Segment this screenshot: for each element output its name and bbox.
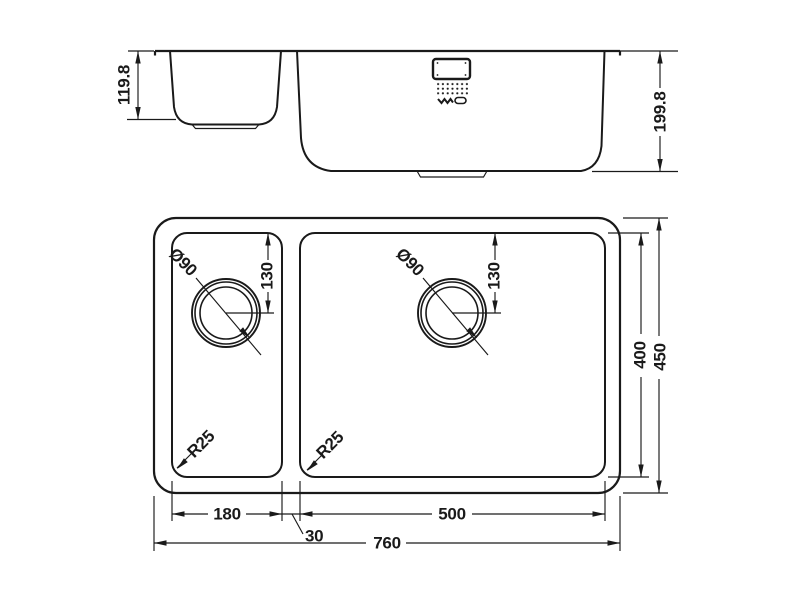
dim-overall-height: 450 [651, 343, 670, 370]
large-bowl-profile [297, 51, 605, 171]
dim-large-bowl-width: 500 [438, 505, 465, 524]
dim-corner-radius-large: R25 [313, 428, 348, 463]
overflow-holes-grid [437, 81, 468, 96]
dim-drain-offset-large: 130 [485, 262, 504, 289]
elevation-view: 119.8 199.8 [115, 51, 679, 177]
small-bowl-profile [170, 51, 281, 125]
arrowhead [492, 301, 497, 314]
arrowhead [300, 511, 313, 516]
arrowhead [657, 51, 662, 64]
arrowhead [172, 511, 185, 516]
dim-overall-width: 760 [373, 534, 400, 553]
arrowhead [492, 233, 497, 246]
arrowhead [135, 51, 140, 64]
plan-dimensions: Ø90 Ø90 130 130 R25 R25 [154, 218, 670, 553]
dim-small-bowl-width: 180 [213, 505, 240, 524]
arrowhead [608, 540, 621, 545]
dim-drain-diameter-small: Ø90 [165, 244, 201, 280]
sink-technical-drawing: 119.8 199.8 Ø90 Ø90 [0, 0, 800, 600]
extension-lines [127, 51, 678, 172]
sink-drawing-canvas: 119.8 199.8 Ø90 Ø90 [0, 0, 800, 600]
dim-depth-small-bowl: 119.8 [115, 65, 134, 105]
dim-divider-width: 30 [305, 527, 323, 546]
arrowhead [265, 301, 270, 314]
dim-drain-offset-small: 130 [258, 262, 277, 289]
arrowhead [154, 540, 167, 545]
elevation-dimensions: 119.8 199.8 [115, 51, 679, 172]
overflow-corner-screws [437, 62, 467, 76]
dim-drain-diameter-large: Ø90 [392, 244, 428, 280]
arrowhead [305, 460, 318, 473]
plan-view: Ø90 Ø90 130 130 R25 R25 [154, 218, 670, 553]
arrowhead [656, 218, 661, 231]
dim-bowl-inner-height: 400 [631, 341, 650, 368]
arrowhead [638, 465, 643, 478]
arrowhead [638, 233, 643, 246]
arrowhead [135, 107, 140, 120]
arrowhead [265, 233, 270, 246]
rim-profile [155, 51, 620, 56]
brand-logo-mark [438, 98, 466, 104]
arrowhead [175, 458, 188, 471]
arrowhead [270, 511, 283, 516]
overflow-outline [433, 59, 470, 79]
sink-outer-outline [154, 218, 620, 493]
dim-depth-large-bowl: 199.8 [651, 91, 670, 132]
overflow-detail [433, 59, 470, 104]
arrowhead [657, 159, 662, 172]
arrowhead [656, 481, 661, 494]
leader-divider-width [292, 514, 303, 534]
arrowhead [593, 511, 606, 516]
